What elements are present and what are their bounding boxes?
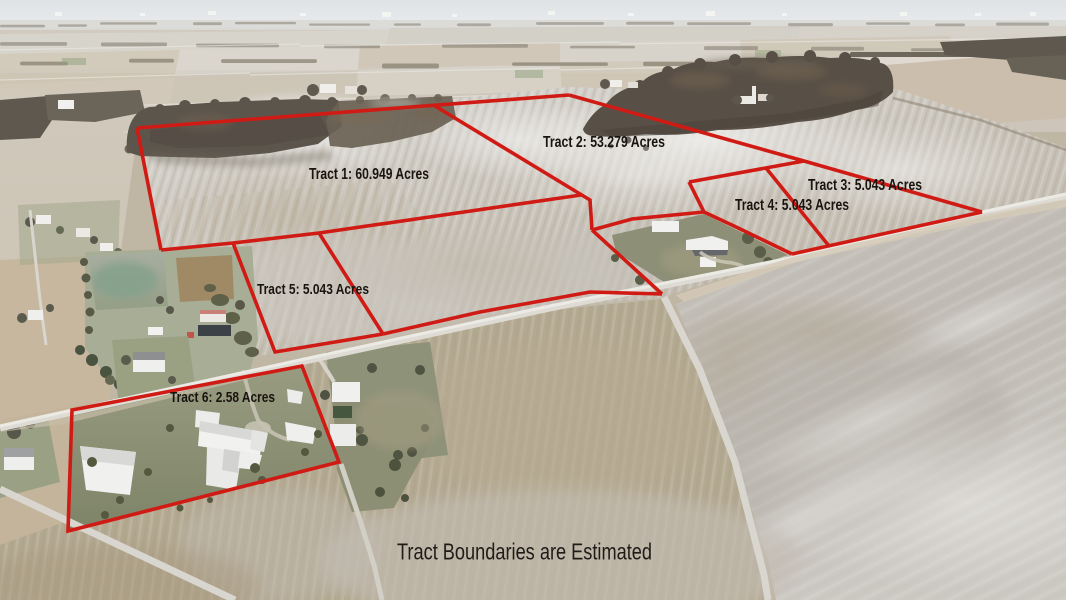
svg-text:Tract 3: 5.043 Acres: Tract 3: 5.043 Acres bbox=[808, 177, 922, 194]
svg-text:Tract Boundaries are Estimated: Tract Boundaries are Estimated bbox=[397, 539, 652, 565]
svg-text:Tract 6: 2.58 Acres: Tract 6: 2.58 Acres bbox=[170, 390, 275, 406]
svg-text:Tract 1: 60.949 Acres: Tract 1: 60.949 Acres bbox=[309, 166, 429, 183]
svg-text:Tract 4: 5.043 Acres: Tract 4: 5.043 Acres bbox=[735, 197, 849, 214]
svg-text:Tract 2: 53.279 Acres: Tract 2: 53.279 Acres bbox=[543, 134, 665, 151]
svg-text:Tract 5: 5.043 Acres: Tract 5: 5.043 Acres bbox=[257, 281, 369, 298]
